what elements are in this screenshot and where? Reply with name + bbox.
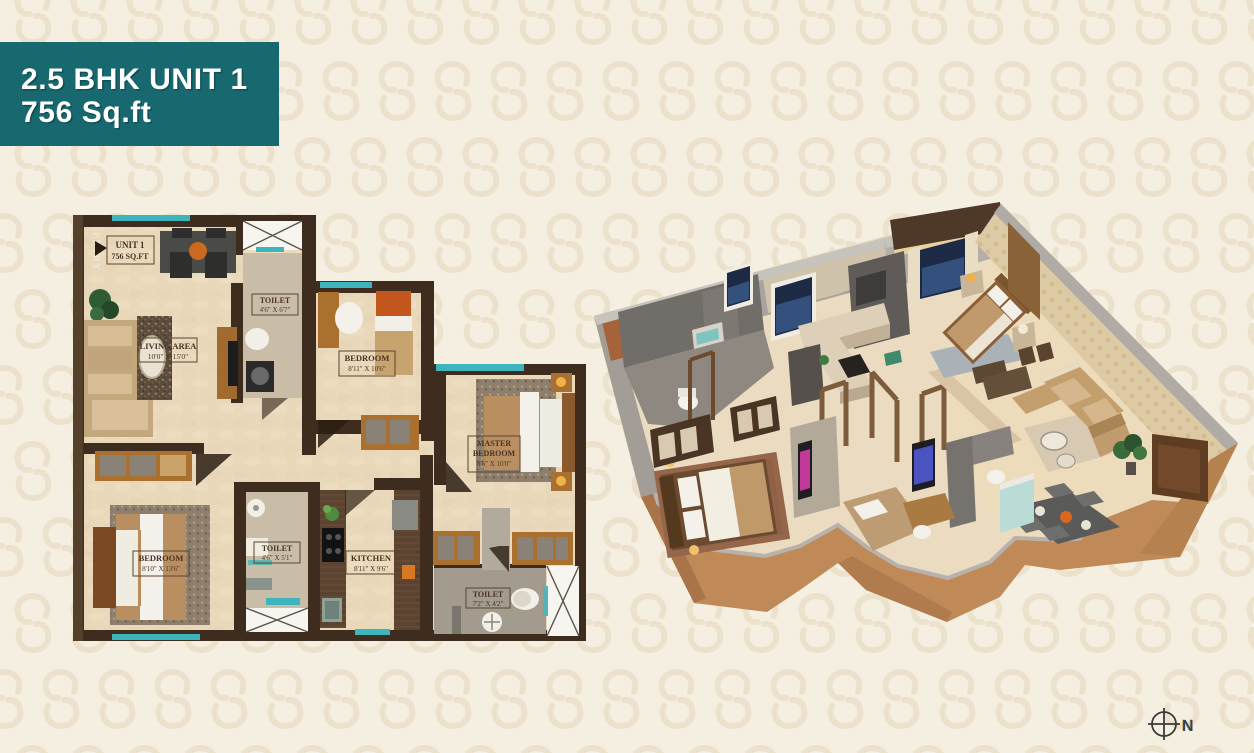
- svg-text:N: N: [1182, 718, 1194, 735]
- svg-text:BEDROOM: BEDROOM: [473, 449, 516, 458]
- svg-text:8'11" X 10'6": 8'11" X 10'6": [348, 365, 386, 373]
- svg-text:8'10" X 13'6": 8'10" X 13'6": [142, 565, 180, 573]
- svg-text:LIVING AREA: LIVING AREA: [140, 341, 198, 351]
- svg-text:TOILET: TOILET: [262, 544, 293, 553]
- svg-text:2.5 BHK UNIT 1: 2.5 BHK UNIT 1: [21, 63, 248, 96]
- svg-text:7'2" X 4'2": 7'2" X 4'2": [473, 600, 504, 608]
- svg-text:KITCHEN: KITCHEN: [351, 553, 392, 563]
- svg-text:UNIT 1: UNIT 1: [115, 240, 145, 250]
- svg-text:756 Sq.ft: 756 Sq.ft: [21, 96, 151, 129]
- svg-text:10'0" X 15'0": 10'0" X 15'0": [148, 352, 189, 361]
- svg-text:4'6" X 5'1": 4'6" X 5'1": [262, 554, 293, 562]
- svg-text:MASTER: MASTER: [477, 439, 511, 448]
- svg-text:TOILET: TOILET: [473, 590, 504, 599]
- svg-text:8'11" X 9'6": 8'11" X 9'6": [354, 565, 388, 573]
- svg-text:756 SQ.FT: 756 SQ.FT: [112, 252, 150, 261]
- svg-text:BEDROOM: BEDROOM: [345, 353, 390, 363]
- svg-text:8'6" X 10'0": 8'6" X 10'0": [477, 460, 511, 468]
- svg-text:TOILET: TOILET: [260, 296, 291, 305]
- svg-text:BEDROOM: BEDROOM: [139, 553, 184, 563]
- svg-text:4'6" X 6'7": 4'6" X 6'7": [260, 306, 291, 314]
